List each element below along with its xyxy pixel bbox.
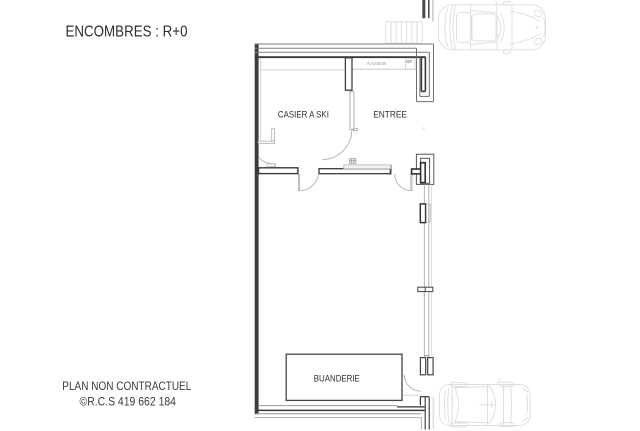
svg-text:ENCOMBRES : R+0: ENCOMBRES : R+0 <box>66 23 188 40</box>
svg-text:BUANDERIE: BUANDERIE <box>314 373 360 384</box>
svg-text:ENTREE: ENTREE <box>373 110 407 121</box>
svg-text:CASIER A SKI: CASIER A SKI <box>278 110 329 121</box>
svg-text:EDF: EDF <box>406 59 412 64</box>
svg-text:PLACARD SKI: PLACARD SKI <box>367 61 386 66</box>
svg-text:PLAN NON CONTRACTUEL: PLAN NON CONTRACTUEL <box>62 380 191 393</box>
svg-text:©R.C.S 419 662 184: ©R.C.S 419 662 184 <box>80 396 177 409</box>
